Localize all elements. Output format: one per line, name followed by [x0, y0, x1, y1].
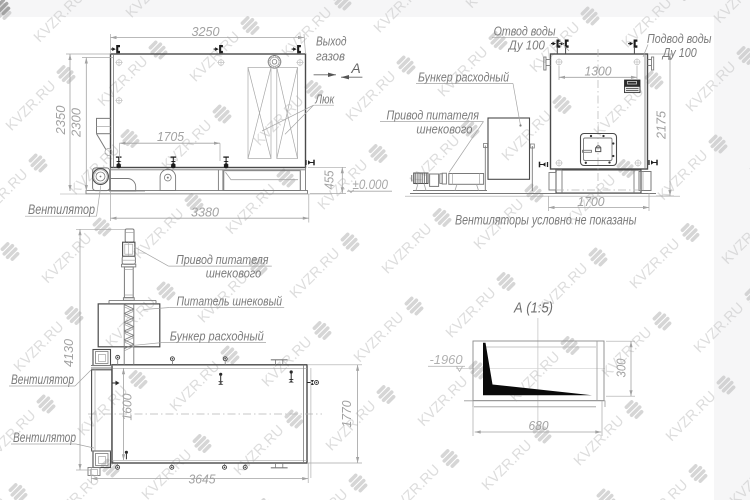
- svg-text:Подвод воды: Подвод воды: [647, 32, 712, 46]
- svg-text:А: А: [350, 60, 360, 76]
- svg-text:Бункер расходный: Бункер расходный: [170, 328, 264, 343]
- svg-text:Привод питателя: Привод питателя: [387, 107, 480, 122]
- svg-text:Вентилятор: Вентилятор: [28, 202, 95, 217]
- svg-text:Привод питателя: Привод питателя: [176, 252, 269, 267]
- svg-text:1700: 1700: [578, 195, 605, 209]
- svg-text:680: 680: [529, 419, 549, 433]
- svg-text:Ду 100: Ду 100: [507, 39, 545, 53]
- svg-text:2300: 2300: [70, 108, 84, 138]
- svg-text:Вентиляторы условно не показан: Вентиляторы условно не показаны: [455, 213, 637, 228]
- svg-text:300: 300: [615, 358, 629, 377]
- svg-text:1770: 1770: [340, 400, 354, 427]
- svg-text:3250: 3250: [192, 25, 220, 39]
- svg-text:1705: 1705: [157, 130, 184, 144]
- svg-text:Вентилятор: Вентилятор: [11, 372, 74, 387]
- svg-text:Питатель шнековый: Питатель шнековый: [177, 293, 283, 308]
- svg-text:-1960: -1960: [430, 352, 464, 367]
- svg-text:2175: 2175: [655, 111, 669, 140]
- svg-text:шнекового: шнекового: [206, 266, 262, 281]
- svg-text:3645: 3645: [189, 473, 216, 487]
- svg-text:Выход: Выход: [316, 34, 347, 49]
- svg-text:шнекового: шнекового: [416, 121, 472, 136]
- svg-text:2350: 2350: [54, 105, 68, 135]
- svg-text:Вентилятор: Вентилятор: [13, 430, 76, 445]
- svg-text:Ду 100: Ду 100: [661, 46, 697, 60]
- svg-text:1600: 1600: [121, 393, 135, 420]
- svg-text:Отвод воды: Отвод воды: [494, 24, 556, 38]
- svg-text:1300: 1300: [585, 64, 612, 78]
- svg-text:455: 455: [323, 170, 337, 189]
- svg-text:А (1:5): А (1:5): [513, 301, 553, 317]
- svg-text:Бункер расходный: Бункер расходный: [418, 69, 509, 84]
- svg-text:газов: газов: [316, 49, 345, 64]
- svg-text:Люк: Люк: [314, 92, 334, 107]
- svg-text:3380: 3380: [191, 206, 219, 220]
- svg-text:4130: 4130: [62, 339, 76, 367]
- svg-text:±0.000: ±0.000: [353, 177, 389, 192]
